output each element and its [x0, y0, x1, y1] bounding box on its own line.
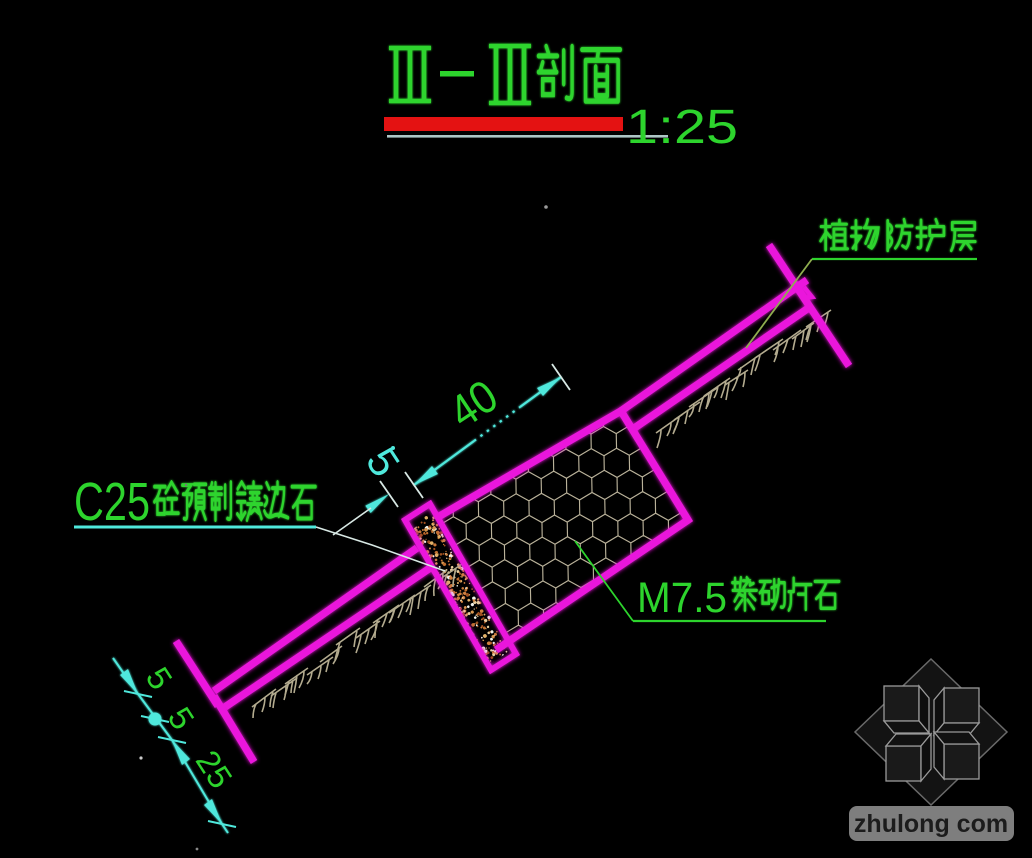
svg-text:1:25: 1:25	[626, 101, 738, 154]
svg-text:zhulong com: zhulong com	[854, 810, 1008, 838]
svg-text:M7.5: M7.5	[637, 574, 727, 622]
svg-text:C25: C25	[74, 472, 150, 532]
